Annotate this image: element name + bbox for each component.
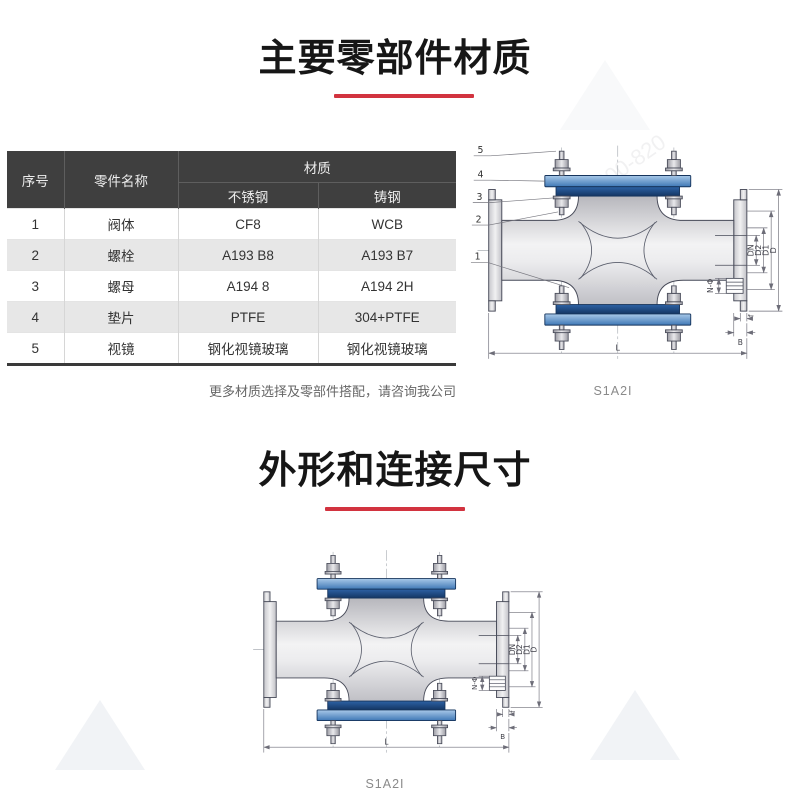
callout-1: 1 <box>475 252 481 263</box>
drawing1-model-caption: S1A2I <box>454 384 772 398</box>
table-cell-stainless: A194 8 <box>178 271 318 302</box>
callout-3: 3 <box>477 192 483 203</box>
table-cell-no: 3 <box>7 271 64 302</box>
callout-4: 4 <box>477 169 483 180</box>
drawing2-model-caption: S1A2I <box>234 777 536 791</box>
table-cell-stainless: CF8 <box>178 209 318 240</box>
header-no: 序号 <box>7 151 64 209</box>
table-cell-no: 2 <box>7 240 64 271</box>
title-underline <box>334 94 474 98</box>
table-cell-cast: A194 2H <box>318 271 456 302</box>
table-cell-cast: A193 B7 <box>318 240 456 271</box>
section1-title: 主要零部件材质 <box>0 38 790 81</box>
callout-5: 5 <box>477 145 483 156</box>
table-cell-part: 视镜 <box>64 333 178 365</box>
header-cast-steel: 铸钢 <box>318 183 456 209</box>
table-cell-no: 4 <box>7 302 64 333</box>
table-cell-no: 1 <box>7 209 64 240</box>
table-cell-no: 5 <box>7 333 64 365</box>
watermark-logo <box>590 690 680 760</box>
valve-drawing-materials: DN D2 D1 D N-Φ f B L <box>470 138 788 398</box>
table-row: 3螺母A194 8A194 2H <box>7 271 456 302</box>
table-cell-part: 阀体 <box>64 209 178 240</box>
table-cell-part: 螺母 <box>64 271 178 302</box>
table-note: 更多材质选择及零部件搭配，请咨询我公司 <box>7 381 456 400</box>
table-body: 1阀体CF8WCB2螺栓A193 B8A193 B73螺母A194 8A194 … <box>7 209 456 365</box>
header-stainless-steel: 不锈钢 <box>178 183 318 209</box>
page: 800-820 800-820 主要零部件材质 序号 零件名称 材质 不锈钢 铸… <box>0 0 790 807</box>
valve-drawing-dimensions: S1A2I <box>246 543 548 791</box>
valve-dimension-diagram <box>246 543 548 765</box>
header-material: 材质 <box>178 151 456 183</box>
table-cell-stainless: PTFE <box>178 302 318 333</box>
table-cell-cast: 钢化视镜玻璃 <box>318 333 456 365</box>
table-cell-stainless: 钢化视镜玻璃 <box>178 333 318 365</box>
callout-2: 2 <box>476 214 482 225</box>
table-row: 4垫片PTFE304+PTFE <box>7 302 456 333</box>
materials-table: 序号 零件名称 材质 不锈钢 铸钢 1阀体CF8WCB2螺栓A193 B8A19… <box>7 151 456 366</box>
table-cell-cast: 304+PTFE <box>318 302 456 333</box>
table-cell-part: 螺栓 <box>64 240 178 271</box>
title-underline <box>325 507 465 511</box>
section2-title: 外形和连接尺寸 <box>0 450 790 493</box>
table-cell-stainless: A193 B8 <box>178 240 318 271</box>
table-row: 5视镜钢化视镜玻璃钢化视镜玻璃 <box>7 333 456 365</box>
table-row: 2螺栓A193 B8A193 B7 <box>7 240 456 271</box>
watermark-logo <box>55 700 145 770</box>
table-cell-cast: WCB <box>318 209 456 240</box>
table-cell-part: 垫片 <box>64 302 178 333</box>
header-part-name: 零件名称 <box>64 151 178 209</box>
valve-cross-section-diagram: DN D2 D1 D N-Φ f B L <box>470 138 788 372</box>
table-row: 1阀体CF8WCB <box>7 209 456 240</box>
